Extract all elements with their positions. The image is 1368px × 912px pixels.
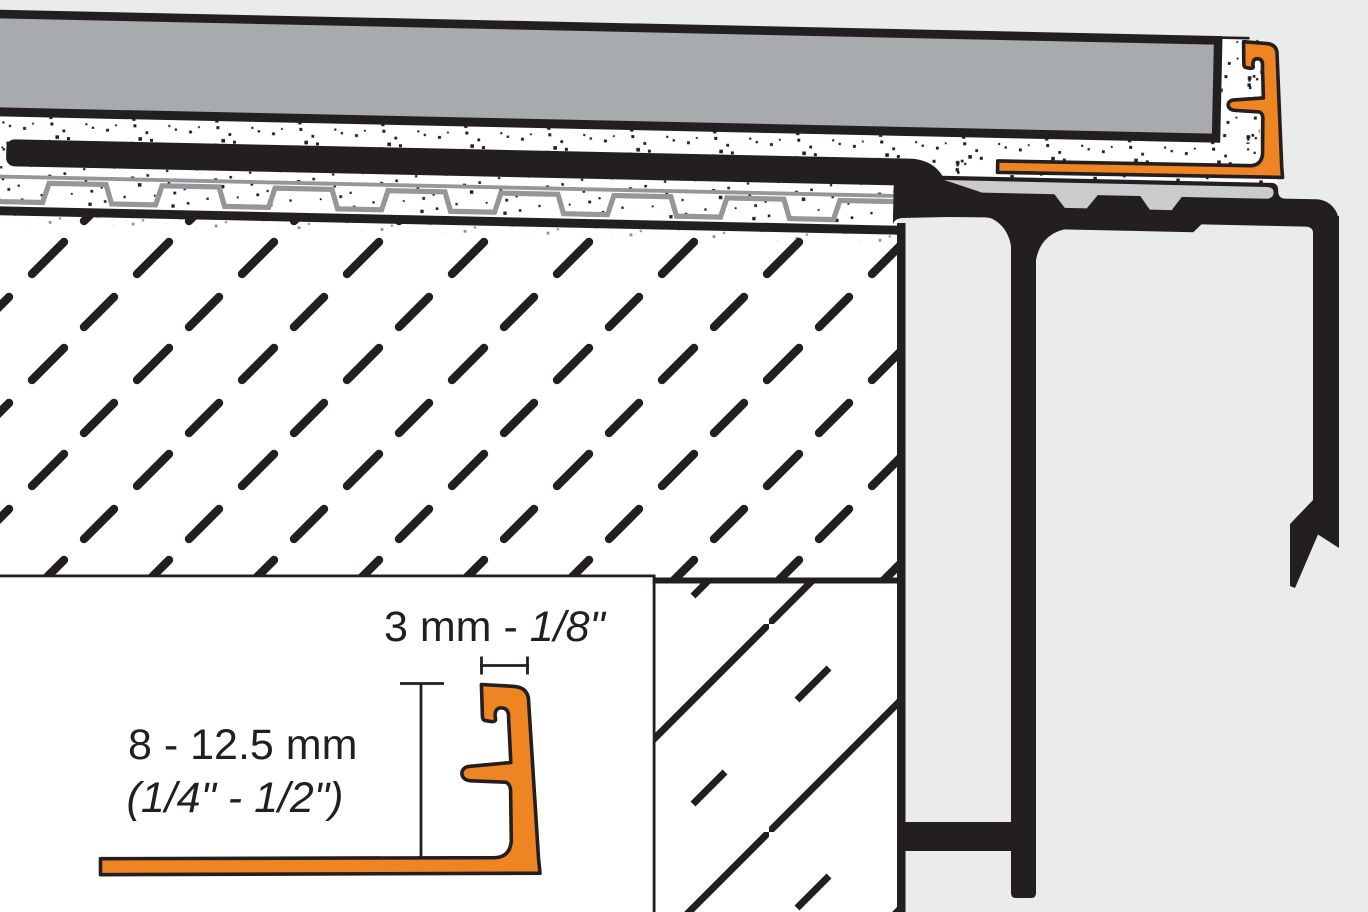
svg-text:3 mm - 1/8": 3 mm - 1/8" bbox=[384, 603, 606, 651]
svg-text:(1/4" - 1/2"): (1/4" - 1/2") bbox=[127, 774, 344, 822]
svg-text:8 - 12.5 mm: 8 - 12.5 mm bbox=[128, 721, 357, 769]
